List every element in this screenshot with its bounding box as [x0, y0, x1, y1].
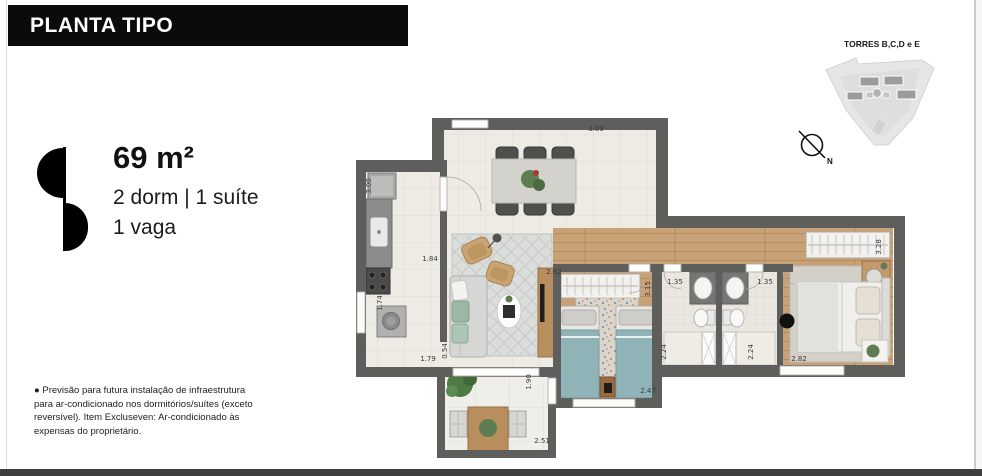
shower-door — [702, 332, 715, 365]
disclaimer-note: ● Previsão para futura instalação de inf… — [34, 384, 284, 438]
towers-label: TORRES B,C,D e E — [822, 39, 942, 49]
page-right-edge — [974, 0, 976, 476]
dimension-label: 0.54 — [441, 343, 449, 359]
dimension-label: 3.28 — [875, 239, 883, 255]
twin-bed-right — [616, 306, 656, 398]
toilet — [694, 309, 715, 327]
page-title: PLANTA TIPO — [8, 14, 173, 38]
floor-plan: 3.093.001.841.740.541.792.623.151.351.35… — [352, 105, 926, 473]
suite-plant — [862, 340, 888, 362]
header-bar: PLANTA TIPO — [8, 5, 408, 46]
logo-half-circle-top — [37, 148, 63, 198]
kitchen-sink — [370, 217, 388, 247]
cooktop — [366, 268, 390, 294]
dimension-label: 2.24 — [747, 344, 755, 360]
door-opening — [629, 264, 650, 272]
bedroom2-closet — [561, 274, 640, 298]
disclaimer-line: ● Previsão para futura instalação de inf… — [34, 384, 284, 398]
page-right-margin — [976, 0, 982, 476]
twin-bed-left — [559, 306, 599, 398]
coffee-table — [497, 294, 521, 328]
dimension-label: 1.74 — [376, 295, 384, 311]
sofa — [450, 276, 487, 357]
dimension-label: 1.79 — [420, 355, 436, 363]
balcony-table-plant — [479, 419, 497, 437]
dimension-label: 3.09 — [588, 125, 604, 133]
page-left-edge — [6, 0, 7, 476]
entry-door — [440, 177, 447, 211]
sink-basin — [726, 277, 744, 299]
window — [452, 120, 488, 128]
disclaimer-line: para ar-condicionado nos dormitórios/suí… — [34, 398, 284, 412]
unit-area: 69 m² — [113, 140, 194, 176]
dimension-label: 2.51 — [534, 437, 550, 445]
balcony-chair — [450, 411, 467, 437]
unit-parking: 1 vaga — [113, 216, 176, 240]
dimension-label: 3.00 — [365, 178, 373, 194]
dimension-label: 3.15 — [644, 281, 652, 297]
brochure-page: { "header": { "title": "PLANTA TIPO" }, … — [0, 0, 982, 476]
window — [573, 399, 635, 407]
dining-furniture — [492, 147, 576, 215]
dimension-label: 2.24 — [660, 344, 668, 360]
toilet — [723, 309, 744, 327]
dimension-label: 1.90 — [525, 374, 533, 390]
dimension-label: 2.62 — [546, 268, 562, 276]
disclaimer-line: reversível). Item Excluseven: Ar-condici… — [34, 411, 284, 425]
dimension-label: 1.35 — [667, 278, 683, 286]
balcony-chair — [509, 411, 526, 437]
dimension-label: 2.47 — [640, 387, 656, 395]
dimension-label: 2.82 — [791, 355, 807, 363]
window — [780, 366, 844, 375]
sink-basin — [694, 277, 712, 299]
logo-half-circle-bottom — [65, 203, 88, 251]
living-room-furniture — [450, 234, 557, 358]
dimension-label: 1.84 — [422, 255, 438, 263]
disclaimer-line: expensas do proprietário. — [34, 425, 284, 439]
door-opening — [746, 264, 763, 272]
unit-rooms: 2 dorm | 1 suíte — [113, 186, 259, 210]
ac-provision-marker — [780, 314, 795, 329]
shower-door — [723, 332, 736, 365]
window — [548, 378, 556, 404]
door-opening — [664, 264, 681, 272]
dimension-label: 1.35 — [757, 278, 773, 286]
nightstand — [600, 377, 615, 397]
window — [357, 292, 365, 333]
